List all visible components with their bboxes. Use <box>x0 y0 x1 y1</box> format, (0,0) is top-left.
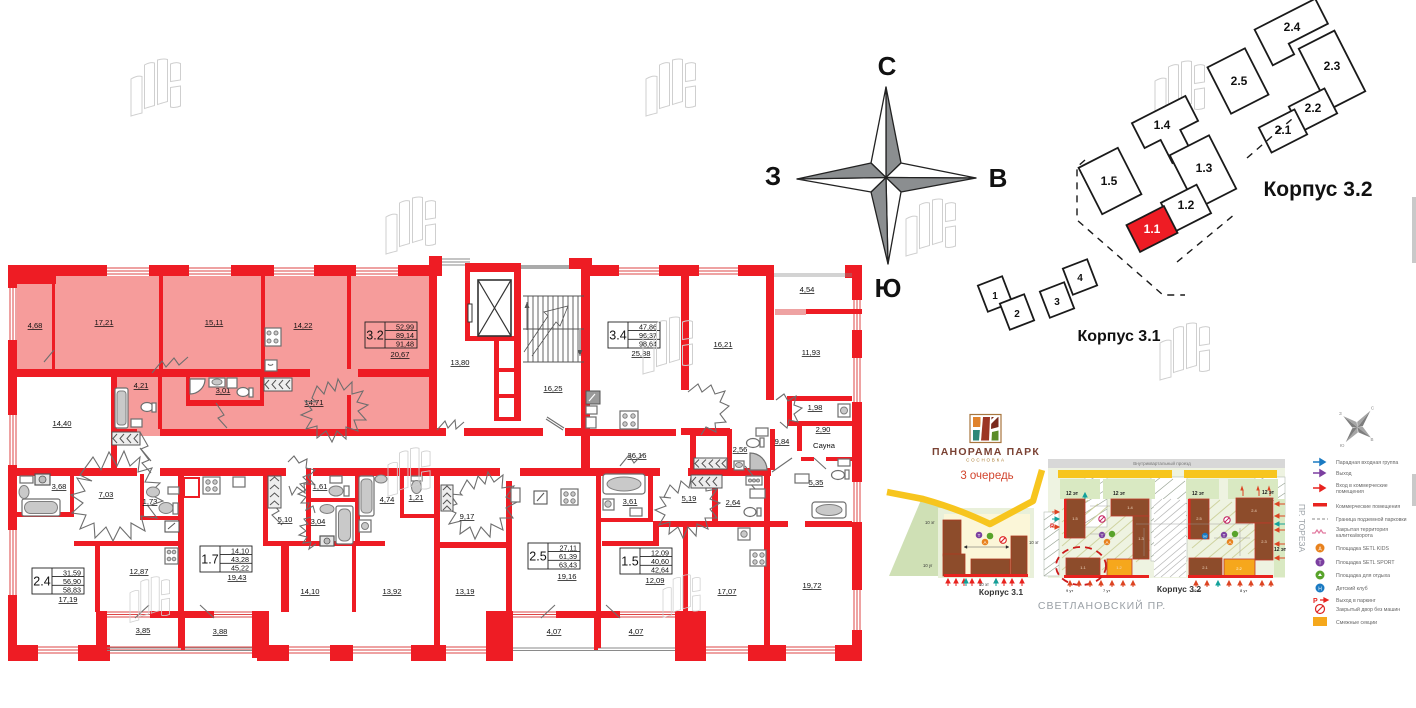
svg-text:40,60: 40,60 <box>651 557 669 566</box>
svg-text:1,61: 1,61 <box>313 482 328 491</box>
svg-text:14,22: 14,22 <box>293 321 312 330</box>
svg-text:10 уг: 10 уг <box>923 563 933 568</box>
svg-text:58,83: 58,83 <box>63 586 81 595</box>
svg-text:Т: Т <box>1223 533 1226 538</box>
svg-text:2.3: 2.3 <box>1324 59 1341 73</box>
svg-text:12 эт: 12 эт <box>1192 491 1205 497</box>
svg-text:Выход: Выход <box>1336 471 1352 477</box>
svg-text:2.1: 2.1 <box>1275 123 1292 137</box>
svg-text:52,99: 52,99 <box>396 322 414 331</box>
svg-text:Корпус 3.2: Корпус 3.2 <box>1263 178 1372 201</box>
svg-text:З: З <box>1339 411 1342 416</box>
svg-text:61,39: 61,39 <box>559 552 577 561</box>
svg-text:2.1: 2.1 <box>1202 565 1208 570</box>
svg-text:помещения: помещения <box>1336 489 1364 495</box>
svg-text:2.2: 2.2 <box>1305 101 1322 115</box>
svg-text:47,86: 47,86 <box>639 322 657 331</box>
svg-text:калитка/ворота: калитка/ворота <box>1336 533 1373 539</box>
svg-text:Детский клуб: Детский клуб <box>1336 585 1368 592</box>
svg-text:Площадка SETL SPORT: Площадка SETL SPORT <box>1336 560 1395 566</box>
svg-text:13,19: 13,19 <box>455 587 474 596</box>
svg-text:7 ут: 7 ут <box>1103 588 1110 593</box>
svg-text:2.3: 2.3 <box>1261 539 1267 544</box>
svg-text:3: 3 <box>1054 297 1060 308</box>
svg-text:91,48: 91,48 <box>396 340 414 349</box>
svg-text:3,85: 3,85 <box>136 626 151 635</box>
svg-text:10 эт: 10 эт <box>1029 540 1039 545</box>
svg-text:Граница подземной парковки: Граница подземной парковки <box>1336 516 1407 523</box>
svg-text:Т: Т <box>978 533 981 538</box>
svg-text:3 очередь: 3 очередь <box>960 470 1013 482</box>
svg-text:1.5: 1.5 <box>1101 174 1118 188</box>
svg-text:89,14: 89,14 <box>396 331 414 340</box>
svg-text:Коммерческие помещения: Коммерческие помещения <box>1336 504 1400 510</box>
svg-text:11,93: 11,93 <box>802 348 820 357</box>
svg-text:56,90: 56,90 <box>63 577 81 586</box>
svg-text:С: С <box>878 51 897 81</box>
svg-text:4,07: 4,07 <box>547 627 562 636</box>
svg-text:ПР. ТОРЕЗА: ПР. ТОРЕЗА <box>1297 504 1307 553</box>
svg-text:Площадка SETL KIDS: Площадка SETL KIDS <box>1336 546 1389 552</box>
svg-text:5,35: 5,35 <box>809 478 824 487</box>
svg-text:Внутриквартальный проезд: Внутриквартальный проезд <box>1133 460 1191 466</box>
svg-text:20,67: 20,67 <box>390 350 409 359</box>
svg-text:14,10: 14,10 <box>231 546 249 555</box>
svg-text:17,21: 17,21 <box>94 318 113 327</box>
svg-text:13,80: 13,80 <box>450 358 469 367</box>
svg-text:2: 2 <box>1014 309 1020 320</box>
svg-text:Т: Т <box>1101 533 1104 538</box>
svg-text:Т: Т <box>1318 561 1321 567</box>
svg-text:1.3: 1.3 <box>1196 161 1213 175</box>
svg-text:1: 1 <box>992 291 998 302</box>
svg-text:3,68: 3,68 <box>52 482 67 491</box>
svg-text:12,09: 12,09 <box>645 576 664 585</box>
svg-text:2.5: 2.5 <box>1196 516 1202 521</box>
svg-text:1.1: 1.1 <box>1144 222 1161 236</box>
svg-text:2,64: 2,64 <box>726 498 741 507</box>
svg-text:7,03: 7,03 <box>99 490 114 499</box>
svg-text:1.5: 1.5 <box>1072 516 1078 521</box>
svg-text:В: В <box>989 163 1008 193</box>
svg-text:19,72: 19,72 <box>802 581 821 590</box>
svg-text:Корпус 3.1: Корпус 3.1 <box>979 587 1023 597</box>
svg-text:Р: Р <box>1050 524 1054 530</box>
svg-text:25,88: 25,88 <box>631 349 650 358</box>
svg-text:16,25: 16,25 <box>543 384 562 393</box>
svg-text:3,04: 3,04 <box>311 517 326 526</box>
svg-text:9,17: 9,17 <box>460 512 475 521</box>
svg-text:Площадка для отдыха: Площадка для отдыха <box>1336 573 1390 579</box>
svg-text:9,84: 9,84 <box>775 437 790 446</box>
svg-text:63,43: 63,43 <box>559 561 577 570</box>
svg-text:43,28: 43,28 <box>231 555 249 564</box>
svg-text:1,73: 1,73 <box>143 497 158 506</box>
svg-text:12 эт: 12 эт <box>1274 547 1287 553</box>
svg-text:ПАНОРАМА ПАРК: ПАНОРАМА ПАРК <box>932 446 1040 458</box>
svg-text:2.2: 2.2 <box>1236 566 1242 571</box>
svg-text:5,19: 5,19 <box>682 494 697 503</box>
svg-text:Выход в паркинг: Выход в паркинг <box>1336 598 1376 604</box>
svg-text:3,88: 3,88 <box>213 627 228 636</box>
svg-text:Ю: Ю <box>875 273 902 303</box>
svg-text:14,10: 14,10 <box>300 587 319 596</box>
svg-text:4: 4 <box>1077 273 1083 284</box>
svg-text:Н: Н <box>1318 587 1322 593</box>
svg-text:4,54: 4,54 <box>800 285 815 294</box>
svg-text:16,21: 16,21 <box>713 340 732 349</box>
svg-text:В: В <box>1371 437 1374 442</box>
svg-text:2,56: 2,56 <box>733 445 748 454</box>
svg-text:СОСНОВКА: СОСНОВКА <box>966 458 1006 463</box>
svg-text:19,16: 19,16 <box>557 572 576 581</box>
svg-text:Р: Р <box>1313 598 1318 605</box>
svg-text:13,92: 13,92 <box>382 587 401 596</box>
svg-text:3.4: 3.4 <box>609 329 626 343</box>
svg-text:4,68: 4,68 <box>28 321 43 330</box>
svg-text:Сауна: Сауна <box>813 441 836 450</box>
svg-text:1.2: 1.2 <box>1116 565 1122 570</box>
svg-text:1.7: 1.7 <box>201 553 218 567</box>
svg-text:12 эт: 12 эт <box>1113 491 1126 497</box>
svg-text:31,59: 31,59 <box>63 568 81 577</box>
svg-text:2.4: 2.4 <box>33 575 50 589</box>
svg-text:А: А <box>983 540 986 545</box>
svg-text:1,98: 1,98 <box>808 403 823 412</box>
svg-text:Корпус 3.1: Корпус 3.1 <box>1077 328 1160 345</box>
svg-text:10 эт: 10 эт <box>925 520 935 525</box>
svg-text:1.1: 1.1 <box>1080 565 1086 570</box>
svg-text:1,21: 1,21 <box>409 493 424 502</box>
svg-text:17,19: 17,19 <box>58 595 77 604</box>
svg-text:17,07: 17,07 <box>717 587 736 596</box>
svg-text:Ю: Ю <box>1340 443 1345 448</box>
svg-text:9 ут: 9 ут <box>1066 588 1073 593</box>
svg-text:45,22: 45,22 <box>231 564 249 573</box>
svg-text:1.2: 1.2 <box>1178 198 1195 212</box>
svg-text:2.4: 2.4 <box>1284 20 1301 34</box>
svg-text:27,11: 27,11 <box>560 543 577 552</box>
svg-text:3,61: 3,61 <box>623 497 638 506</box>
svg-text:14,40: 14,40 <box>52 419 71 428</box>
svg-text:19,43: 19,43 <box>227 573 246 582</box>
svg-text:12 эт: 12 эт <box>1262 490 1275 496</box>
svg-text:2.4: 2.4 <box>1251 508 1257 513</box>
svg-text:2.5: 2.5 <box>529 550 546 564</box>
svg-text:2,90: 2,90 <box>816 425 831 434</box>
svg-text:1.5: 1.5 <box>621 555 638 569</box>
svg-text:36,16: 36,16 <box>627 451 646 460</box>
svg-text:2.5: 2.5 <box>1231 74 1248 88</box>
svg-text:4,21: 4,21 <box>134 381 149 390</box>
svg-text:4,74: 4,74 <box>380 495 395 504</box>
svg-text:З: З <box>765 161 781 191</box>
svg-text:8 ут: 8 ут <box>1240 588 1247 593</box>
svg-text:3.2: 3.2 <box>366 329 383 343</box>
svg-text:Смежные секции: Смежные секции <box>1336 620 1377 626</box>
svg-text:12,87: 12,87 <box>129 567 148 576</box>
svg-text:Корпус 3.2: Корпус 3.2 <box>1157 584 1201 594</box>
svg-text:12,09: 12,09 <box>651 548 669 557</box>
svg-text:СВЕТЛАНОВСКИЙ ПР.: СВЕТЛАНОВСКИЙ ПР. <box>1038 599 1166 612</box>
svg-text:Закрытый двор без машин: Закрытый двор без машин <box>1336 606 1400 613</box>
svg-text:42,64: 42,64 <box>651 566 669 575</box>
svg-text:4,07: 4,07 <box>629 627 644 636</box>
svg-text:1.3: 1.3 <box>1138 536 1144 541</box>
svg-text:А: А <box>1228 540 1231 545</box>
svg-text:А: А <box>1105 540 1108 545</box>
svg-text:15,11: 15,11 <box>205 318 223 327</box>
svg-text:1.4: 1.4 <box>1127 505 1133 510</box>
svg-text:Парадная входная группа: Парадная входная группа <box>1336 460 1398 466</box>
svg-text:12 эт: 12 эт <box>1066 491 1079 497</box>
svg-text:1.4: 1.4 <box>1154 118 1171 132</box>
svg-text:Н: Н <box>1203 534 1206 539</box>
